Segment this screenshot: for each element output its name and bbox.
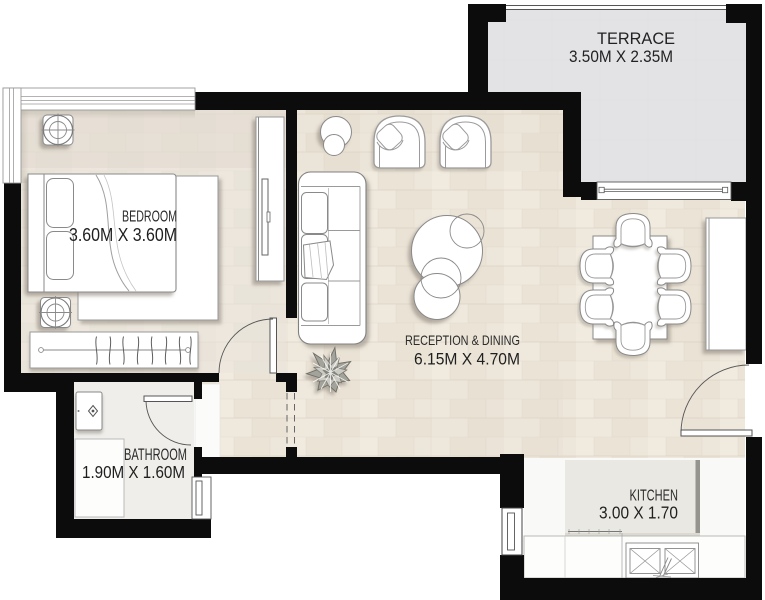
svg-text:BEDROOM: BEDROOM: [122, 209, 177, 226]
svg-text:1.90M X 1.60M: 1.90M X 1.60M: [82, 462, 185, 482]
svg-text:3.50M X 2.35M: 3.50M X 2.35M: [569, 48, 673, 66]
svg-text:3.00 X 1.70: 3.00 X 1.70: [599, 503, 678, 523]
svg-text:6.15M X 4.70M: 6.15M X 4.70M: [414, 350, 520, 369]
svg-text:TERRACE: TERRACE: [597, 30, 675, 48]
svg-text:RECEPTION & DINING: RECEPTION & DINING: [405, 333, 520, 348]
svg-text:3.60M X 3.60M: 3.60M X 3.60M: [69, 225, 177, 245]
